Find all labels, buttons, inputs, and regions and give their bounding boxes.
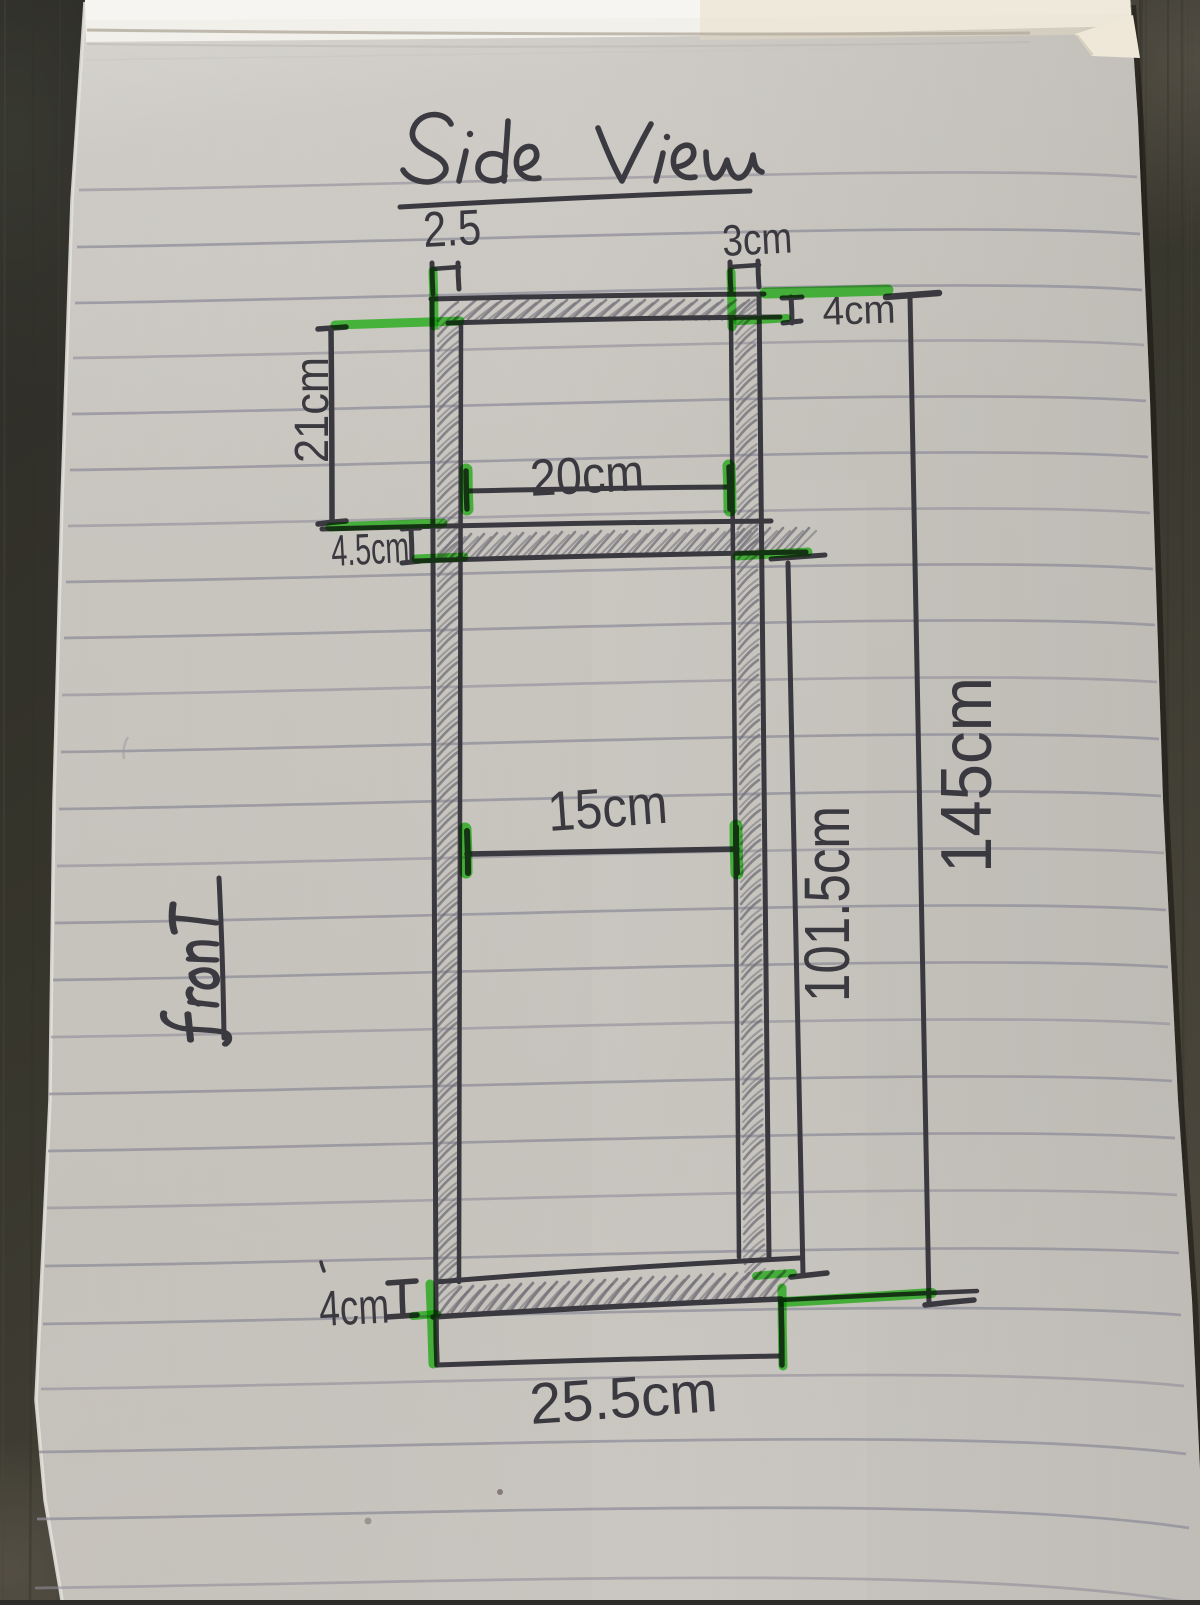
- svg-text:21cm: 21cm: [286, 357, 339, 463]
- svg-text:4.5cm: 4.5cm: [330, 523, 410, 576]
- svg-text:15cm: 15cm: [545, 772, 669, 843]
- svg-text:25.5cm: 25.5cm: [527, 1359, 719, 1437]
- svg-text:145cm: 145cm: [927, 677, 1007, 873]
- svg-text:4cm: 4cm: [822, 287, 896, 334]
- svg-text:4cm: 4cm: [318, 1277, 391, 1337]
- svg-text:3cm: 3cm: [721, 213, 793, 266]
- svg-text:20cm: 20cm: [529, 444, 646, 508]
- svg-text:101.5cm: 101.5cm: [791, 806, 863, 1002]
- svg-text:2.5: 2.5: [422, 199, 483, 258]
